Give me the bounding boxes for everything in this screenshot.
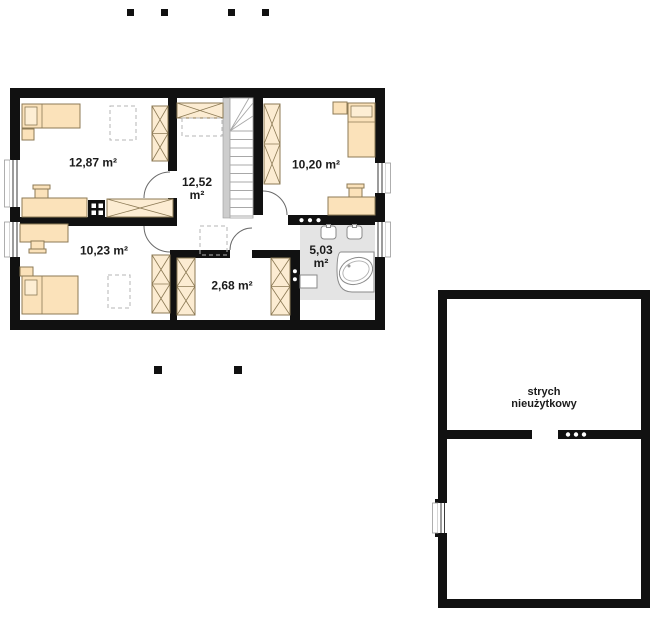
attic-label-line2: nieużytkowy	[511, 398, 576, 410]
floor-plan-page: 12,87 m² 12,52 m² 10,20 m² 10,23 m² 2,68…	[0, 0, 660, 621]
wardrobe-closet-right	[271, 258, 290, 315]
bed-top-left	[22, 104, 80, 128]
sink-right	[347, 225, 362, 240]
area-unit: m²	[182, 189, 212, 202]
attic-plan	[433, 290, 651, 608]
door-arc-bedroom-top-right	[263, 191, 287, 215]
wardrobe-bedroom-top-left	[152, 106, 168, 161]
attic-label-line1: strych	[511, 386, 576, 398]
window-right-2	[375, 222, 391, 257]
area-unit: m²	[309, 257, 332, 270]
rug-bottom-left	[108, 275, 130, 308]
chimney-symbol	[88, 200, 105, 217]
area-label-bedroom-top-right: 10,20 m²	[292, 159, 340, 172]
attic-mid-wall	[447, 430, 641, 439]
door-arc-bedroom-top-left	[144, 172, 170, 198]
attic-label: strych nieużytkowy	[511, 386, 576, 410]
nightstand-top-left	[22, 129, 34, 140]
corner-bathtub	[336, 252, 377, 292]
nightstand-top-right	[333, 102, 347, 114]
washer	[300, 275, 317, 288]
staircase	[223, 98, 253, 218]
desk-bottom-left	[20, 224, 68, 253]
wardrobe-bedroom-bottom-left	[152, 255, 170, 313]
door-arc-closet	[230, 228, 252, 250]
area-label-bedroom-bottom-left: 10,23 m²	[80, 245, 128, 258]
desk-top-right	[328, 184, 375, 215]
desk-top-left	[22, 185, 87, 217]
area-label-closet: 2,68 m²	[211, 280, 252, 293]
wardrobe-bedroom-top-right	[264, 104, 280, 184]
attic-outer-walls	[438, 290, 650, 608]
area-label-bedroom-top-left: 12,87 m²	[69, 157, 117, 170]
bed-bottom-left	[22, 276, 78, 314]
nightstand-bottom-left	[20, 267, 33, 276]
floor-plan-drawing	[0, 0, 660, 621]
sink-left	[321, 225, 336, 240]
door-arc-bedroom-bottom-left	[144, 226, 170, 252]
cabinet-top-left	[107, 199, 173, 217]
wardrobe-closet-left	[177, 258, 195, 315]
window-right-1	[375, 163, 391, 193]
attic-window	[433, 499, 448, 537]
window-left-1	[5, 160, 21, 207]
bed-top-right	[348, 103, 375, 157]
cabinet-hall	[177, 103, 223, 118]
area-label-hall: 12,52 m²	[182, 176, 212, 202]
window-left-2	[5, 222, 21, 257]
main-floor-plan	[5, 88, 391, 330]
area-label-bathroom: 5,03 m²	[309, 244, 332, 270]
dashed-outline-hall-top	[182, 118, 222, 136]
rug-top-left	[110, 106, 136, 140]
